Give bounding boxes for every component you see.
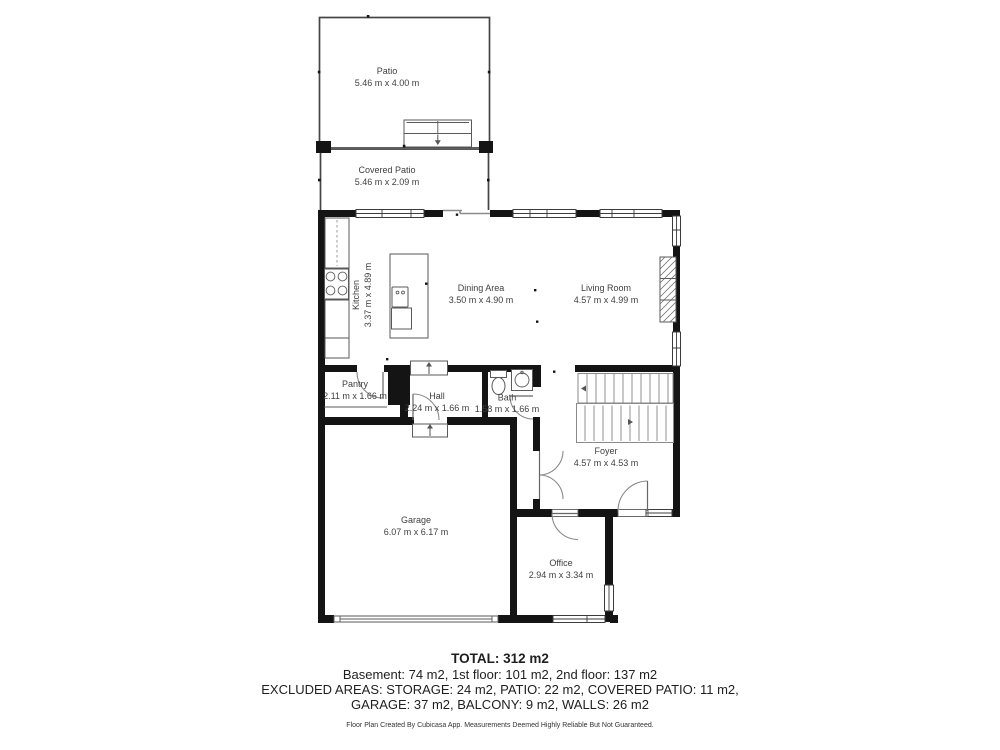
fireplace-symbol xyxy=(660,257,676,322)
foyer-label: Foyer xyxy=(594,446,617,456)
excluded-areas-text-1: EXCLUDED AREAS: STORAGE: 24 m2, PATIO: 2… xyxy=(0,682,1000,697)
summary-footer: TOTAL: 312 m2 Basement: 74 m2, 1st floor… xyxy=(0,651,1000,730)
window-kitchen-top xyxy=(356,210,424,218)
dining-label: Dining Area xyxy=(458,283,505,293)
excluded-areas-text-2: GARAGE: 37 m2, BALCONY: 9 m2, WALLS: 26 … xyxy=(0,697,1000,712)
bath-toilet-symbol xyxy=(491,371,507,395)
floor-plan-svg: Patio 5.46 m x 4.00 m Covered Patio 5.46… xyxy=(0,0,1000,650)
kitchen-dims: 3.37 m x 4.89 m xyxy=(363,263,373,328)
kitchen-label: Kitchen xyxy=(351,280,361,310)
floor-plan-page: Patio 5.46 m x 4.00 m Covered Patio 5.46… xyxy=(0,0,1000,750)
entry-door-arc xyxy=(618,481,648,511)
hall-door-top-icon xyxy=(411,361,448,375)
patio-label: Patio xyxy=(377,66,398,76)
window-foyer-front xyxy=(646,510,672,517)
island-sink-symbol xyxy=(392,287,408,307)
stove-symbol xyxy=(325,269,349,299)
hall-dims: 2.24 m x 1.66 m xyxy=(405,403,470,413)
window-living-right-lower xyxy=(673,332,681,366)
hall-door-bottom-icon xyxy=(413,424,448,437)
office-door-arc xyxy=(552,514,578,540)
stairs-lower-flight xyxy=(577,404,674,443)
covered-patio-post-left xyxy=(316,141,331,153)
entry-threshold xyxy=(618,510,648,517)
floor-areas-text: Basement: 74 m2, 1st floor: 101 m2, 2nd … xyxy=(0,667,1000,682)
window-office-right xyxy=(605,585,614,611)
covered-patio-label: Covered Patio xyxy=(358,165,415,175)
living-dims: 4.57 m x 4.99 m xyxy=(574,295,639,305)
dishwasher-symbol xyxy=(392,308,412,329)
total-area-text: TOTAL: 312 m2 xyxy=(0,651,1000,667)
hall-label: Hall xyxy=(429,391,445,401)
garage-door xyxy=(334,616,498,622)
dining-dims: 3.50 m x 4.90 m xyxy=(449,295,514,305)
window-living-top-left xyxy=(513,210,576,218)
patio-dims: 5.46 m x 4.00 m xyxy=(355,78,420,88)
pantry-dims: 2.11 m x 1.66 m xyxy=(323,391,387,401)
garage-label: Garage xyxy=(401,515,431,525)
dimension-ticks xyxy=(318,15,556,373)
patio-steps xyxy=(404,120,472,147)
stairs-upper-flight xyxy=(578,374,673,404)
disclaimer-text: Floor Plan Created By Cubicasa App. Meas… xyxy=(0,721,1000,730)
garage-dims: 6.07 m x 6.17 m xyxy=(384,527,449,537)
window-living-right-upper xyxy=(673,216,681,246)
pantry-label: Pantry xyxy=(342,379,369,389)
double-door-arcs xyxy=(539,451,563,499)
bath-label: Bath xyxy=(498,393,517,403)
office-dims: 2.94 m x 3.34 m xyxy=(529,570,594,580)
kitchen-island xyxy=(390,254,428,338)
office-label: Office xyxy=(549,558,572,568)
sliding-door xyxy=(443,211,490,214)
bath-sink-symbol xyxy=(512,370,533,391)
foyer-dims: 4.57 m x 4.53 m xyxy=(574,458,639,468)
bath-dims: 1.58 m x 1.66 m xyxy=(475,404,540,414)
window-office-bottom xyxy=(553,616,605,623)
covered-patio-dims: 5.46 m x 2.09 m xyxy=(355,177,420,187)
living-label: Living Room xyxy=(581,283,631,293)
covered-patio-post-right xyxy=(479,141,493,153)
window-living-top-right xyxy=(600,210,662,218)
